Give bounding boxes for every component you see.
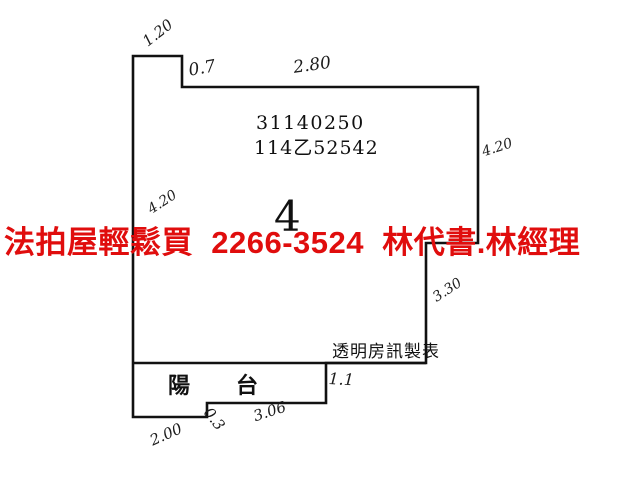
parcel-number: 31140250: [256, 112, 365, 134]
source-attribution-label: 透明房訊製表: [332, 337, 440, 362]
balcony-label: 陽 台: [168, 368, 258, 400]
floor-plan-page: 31140250 114乙52542 4 陽 台 透明房訊製表 1.20 0.7…: [0, 0, 640, 480]
registration-number: 114乙52542: [254, 133, 379, 160]
agent-advertisement-watermark: 法拍屋輕鬆買 2266-3524 林代書.林經理: [4, 217, 640, 262]
measurement-balcony-right: 1.1: [328, 369, 354, 389]
